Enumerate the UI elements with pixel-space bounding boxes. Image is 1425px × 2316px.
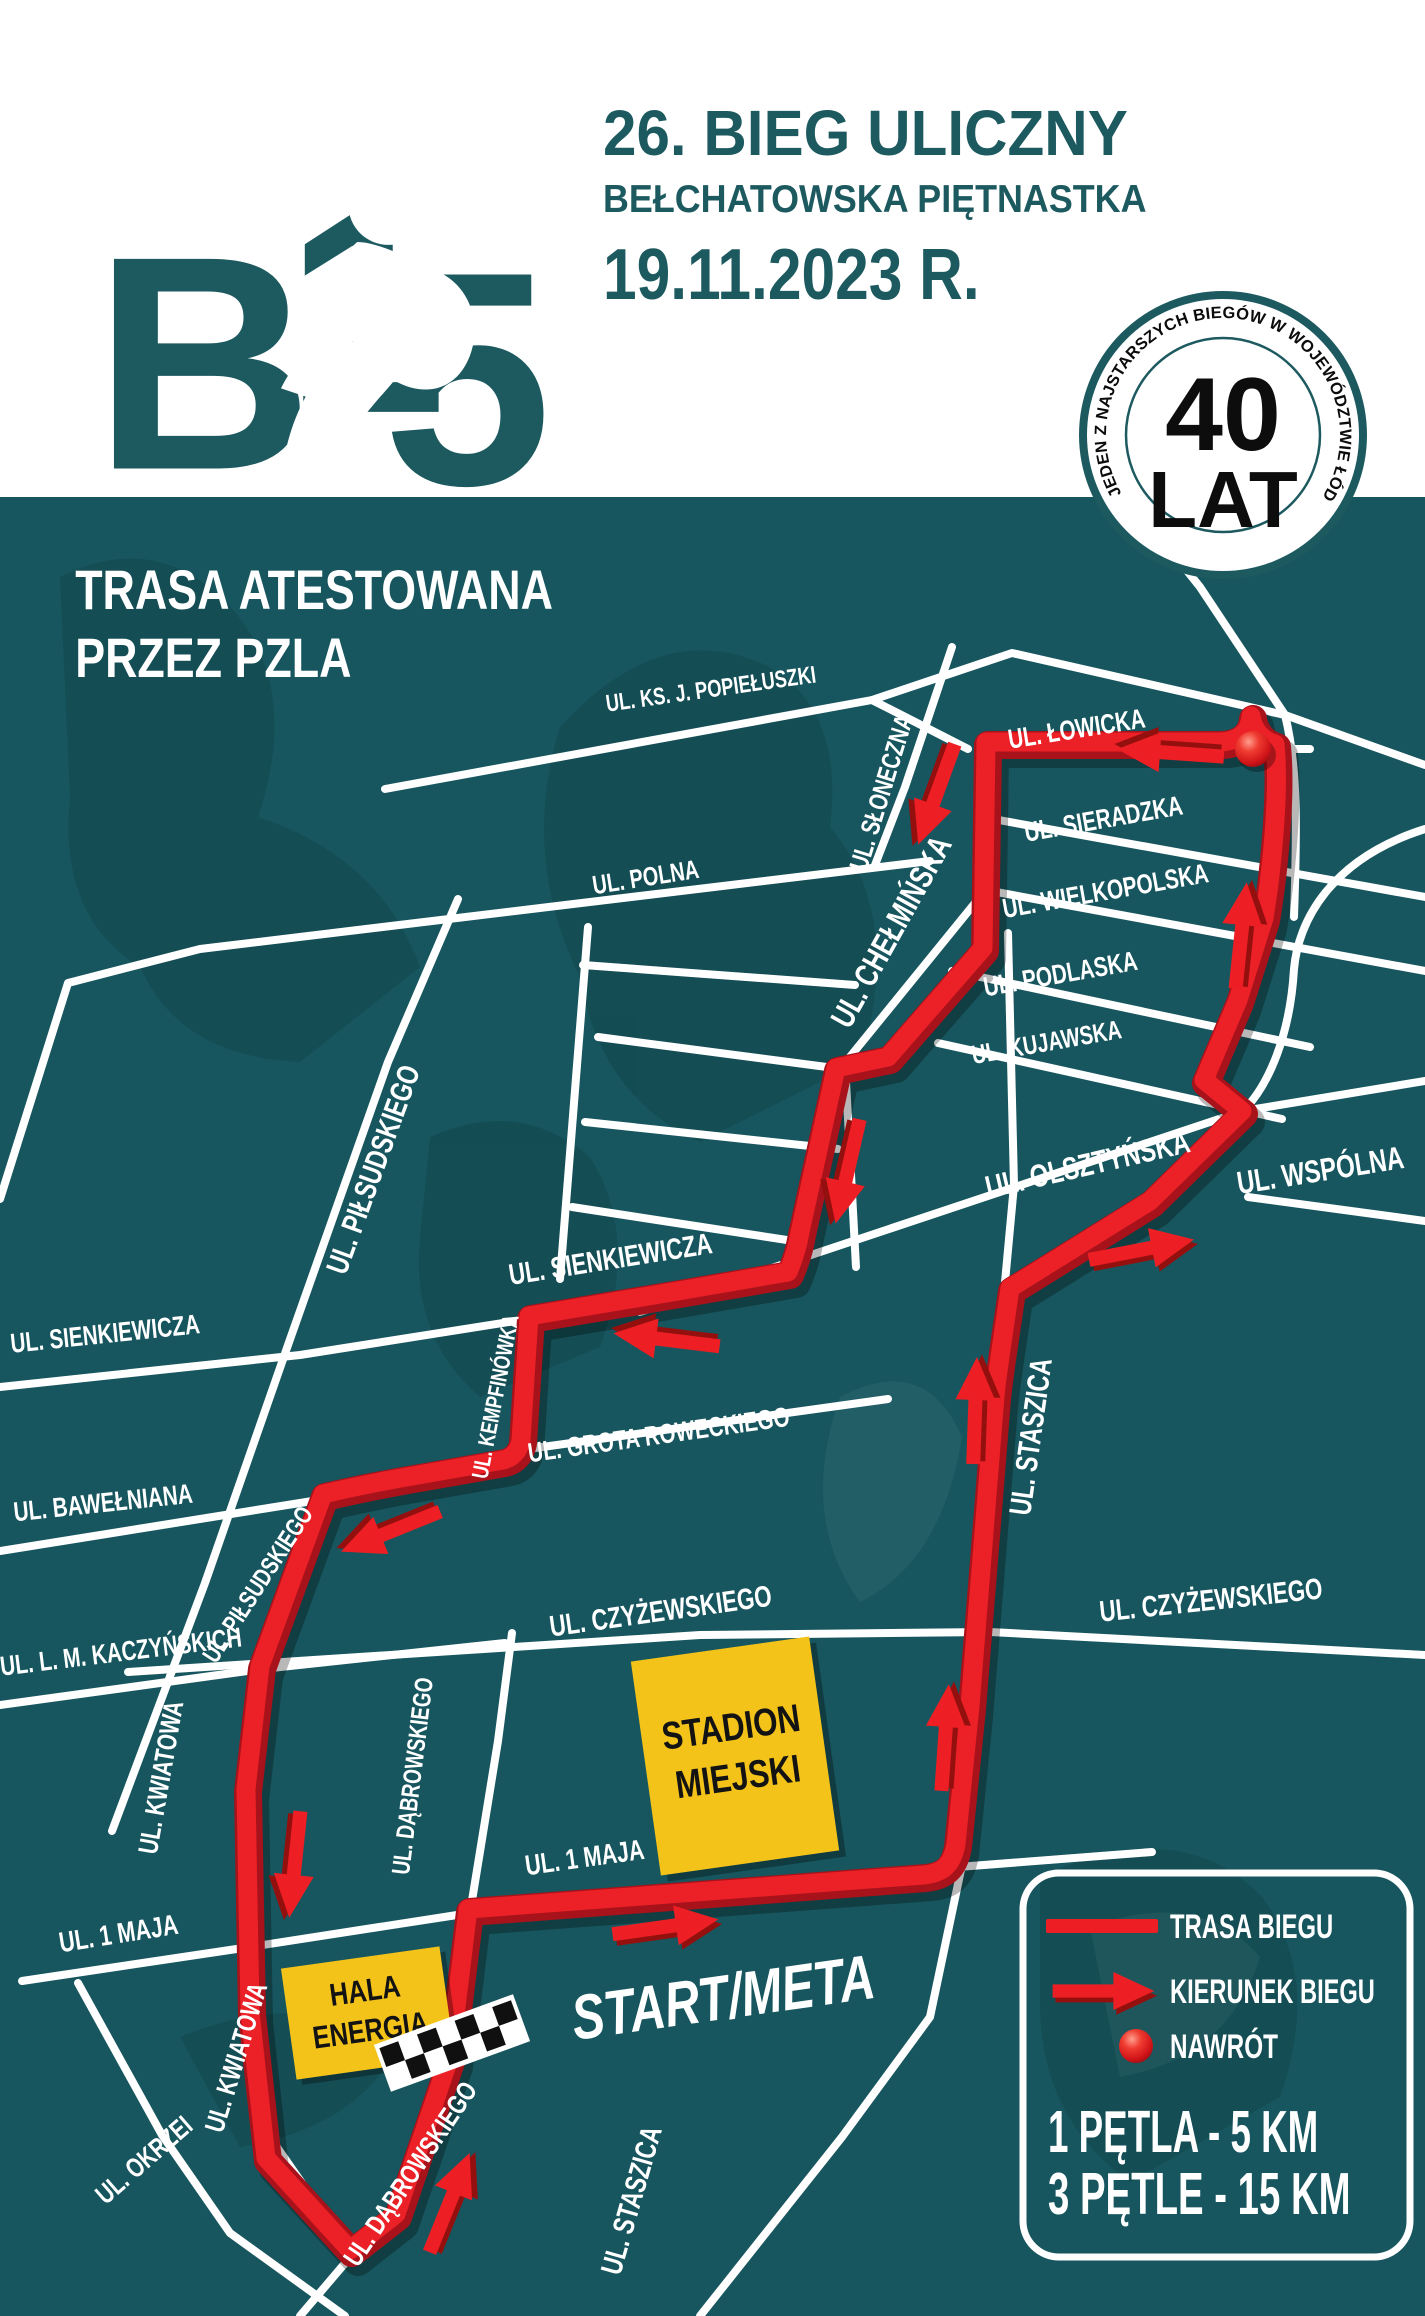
logo-letter-b: B	[94, 192, 314, 488]
certification-line2: PRZEZ PZLA	[75, 626, 351, 689]
legend-loop1-distance: 1 PĘTLA - 5 KM	[1048, 2099, 1318, 2165]
course-map: TRASA ATESTOWANA PRZEZ PZLA	[0, 497, 1425, 2316]
legend-route-label: TRASA BIEGU	[1170, 1908, 1333, 1946]
anniversary-badge: JEDEN Z NAJSTARSZYCH BIEGÓW W WOJEWÓDZTW…	[1073, 285, 1373, 585]
race-logo: B 1 5	[88, 78, 558, 488]
badge-word: LAT	[1148, 455, 1298, 544]
certification-line1: TRASA ATESTOWANA	[75, 558, 553, 621]
page-subtitle: BEŁCHATOWSKA PIĘTNASTKA	[603, 178, 1147, 222]
page-title: 26. BIEG ULICZNY	[603, 96, 1158, 170]
race-poster: { "header": { "logo": { "b": "B", "one":…	[0, 0, 1425, 2316]
header-titles: 26. BIEG ULICZNY BEŁCHATOWSKA PIĘTNASTKA…	[603, 96, 1194, 316]
event-date: 19.11.2023 R.	[603, 234, 1099, 316]
legend-direction-label: KIERUNEK BIEGU	[1170, 1973, 1375, 2011]
legend-turnaround-label: NAWRÓT	[1170, 2026, 1278, 2066]
stadium-building: STADION MIEJSKI	[631, 1636, 846, 1883]
route-line-sample-icon	[1046, 1919, 1158, 1933]
turnaround-dot-sample-icon	[1119, 2029, 1153, 2063]
legend-loop3-distance: 3 PĘTLE - 15 KM	[1048, 2161, 1351, 2227]
